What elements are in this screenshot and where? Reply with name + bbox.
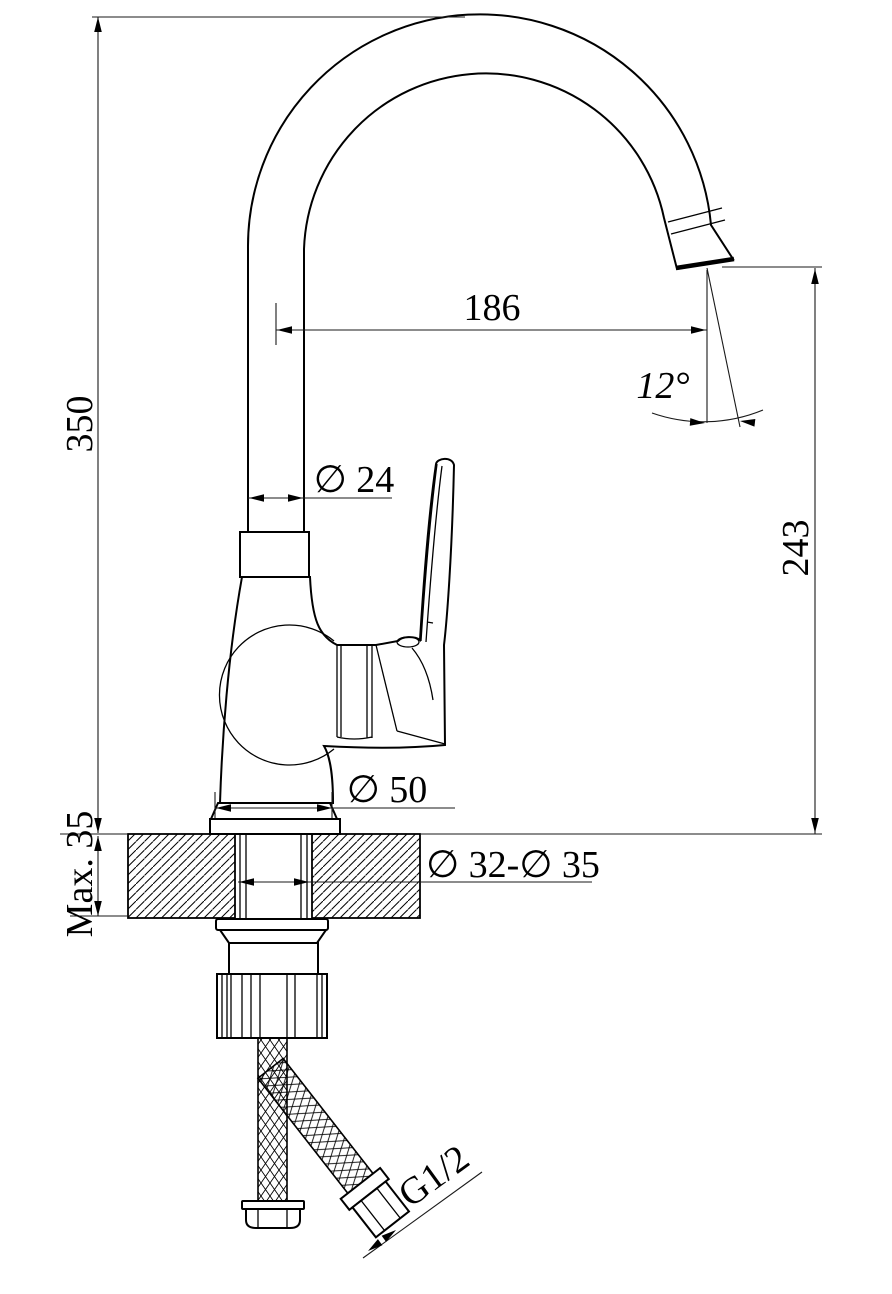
drawing-page: 350 Max. 35 186 12° 243 ∅ 24: [0, 0, 892, 1294]
supply-hose-vertical: [242, 1038, 304, 1228]
dimension-deck-thickness: Max. 35: [59, 811, 128, 938]
deck-right-block: [312, 834, 420, 918]
rubber-washer: [216, 919, 328, 930]
deck-thickness-label: Max. 35: [59, 811, 101, 938]
dimension-spout-reach: 186: [276, 287, 707, 345]
cone-washer: [220, 930, 326, 943]
base-diameter-label: ∅ 50: [347, 769, 428, 811]
mounting-hole-label: ∅ 32-∅ 35: [426, 844, 600, 886]
hose-fitting-flange: [242, 1201, 304, 1209]
shank-cylinder: [229, 943, 318, 974]
faucet-technical-drawing: 350 Max. 35 186 12° 243 ∅ 24: [0, 0, 892, 1294]
column-collar: [240, 532, 309, 577]
spout-reach-label: 186: [464, 287, 521, 329]
mounting-nut: [217, 974, 327, 1038]
spout-angle-label: 12°: [636, 365, 689, 407]
hose-fitting-nut: [246, 1209, 300, 1228]
dimension-outlet-height: 243: [420, 267, 822, 834]
deck-left-block: [128, 834, 235, 918]
dimension-spout-angle: 12°: [636, 268, 763, 427]
countertop-section: [128, 834, 420, 919]
column-diameter-label: ∅ 24: [314, 459, 395, 501]
threaded-shank: [240, 834, 307, 919]
fixing-kit: [216, 919, 328, 1038]
spout-gooseneck: [248, 14, 734, 532]
outlet-height-label: 243: [775, 520, 817, 577]
overall-height-label: 350: [59, 396, 101, 453]
